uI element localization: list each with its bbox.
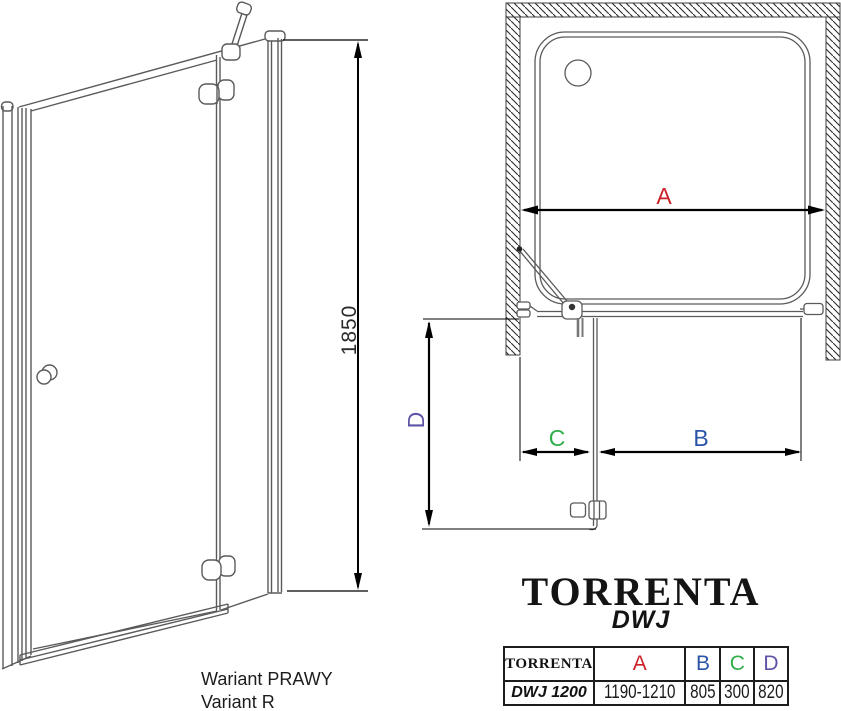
variant-line-2: Variant R (201, 691, 333, 711)
plan-drain (565, 60, 591, 86)
plan-door-handle (571, 501, 607, 519)
table-row: DWJ 1200 1190-1210 805 300 820 (504, 681, 788, 705)
table-cell-model: DWJ 1200 (504, 681, 594, 705)
plan-walls (506, 3, 840, 360)
table-cell-d: 820 (754, 681, 788, 705)
front-fixed-panel (221, 31, 285, 610)
front-support-bar (231, 1, 252, 49)
dim-b-label: B (693, 425, 708, 451)
dim-c-label: C (549, 425, 566, 451)
front-door-knob (37, 365, 57, 384)
plan-wall-bracket-left (517, 302, 537, 317)
table-header-brand: TORRENTA (504, 647, 594, 681)
variant-label: Wariant PRAWY Variant R (201, 668, 333, 711)
front-wall-profile (2, 102, 32, 669)
dim-a-label: A (656, 183, 672, 209)
dim-height-label: 1850 (338, 305, 361, 356)
front-view (2, 1, 286, 669)
plan-open-door (571, 318, 607, 530)
table-cell-c: 300 (720, 681, 754, 705)
table-header-b: B (685, 647, 720, 681)
wall-hatch-right (826, 17, 840, 360)
variant-line-1: Wariant PRAWY (201, 668, 333, 691)
dim-a (521, 206, 825, 215)
front-hinge-top (222, 44, 240, 60)
plan-wall-bracket-right (800, 304, 823, 315)
table-header-c: C (720, 647, 754, 681)
technical-sheet: 1850 (0, 0, 841, 711)
support-bar-anchor (517, 246, 523, 252)
plan-support-bar (517, 246, 567, 304)
plan-hinge (562, 301, 583, 337)
table-header-row: TORRENTA A B C D (504, 647, 788, 681)
front-hinge-bottom (202, 556, 235, 580)
table-header-d: D (754, 647, 788, 681)
wall-hatch-top (506, 3, 840, 17)
table-header-a: A (594, 647, 685, 681)
table-cell-a: 1190-1210 (594, 681, 685, 705)
plan-shower-tray (535, 32, 810, 304)
model-subtitle: DWJ (500, 606, 782, 635)
dimensions-table: TORRENTA A B C D DWJ 1200 1190-1210 805 … (503, 646, 789, 706)
table-cell-b: 805 (685, 681, 720, 705)
front-bottom-rail (20, 604, 228, 665)
dim-d-label: D (403, 412, 429, 429)
